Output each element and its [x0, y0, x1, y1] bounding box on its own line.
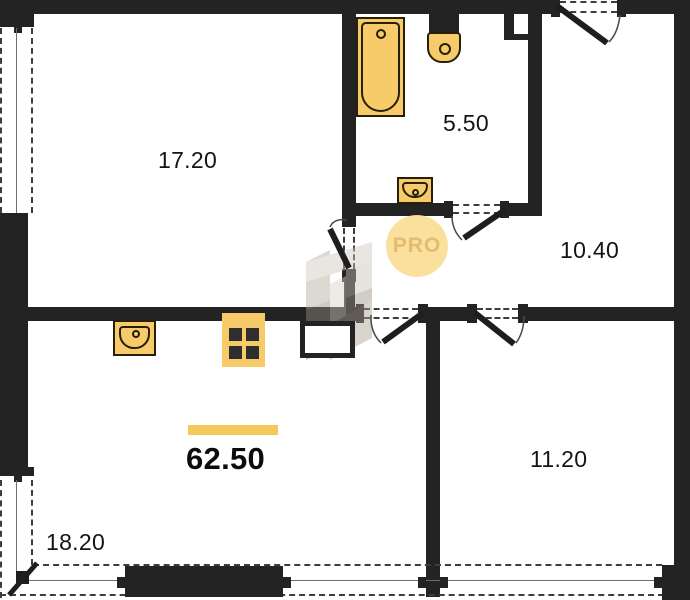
shaft-box	[300, 321, 355, 358]
wall-bathroom-bottom	[509, 203, 542, 216]
window-tick	[440, 577, 448, 588]
entry-door-opening-dashes	[560, 11, 617, 13]
balcony-glazing-dashed	[0, 480, 2, 598]
toilet-icon	[427, 32, 461, 63]
window-tick	[418, 577, 426, 588]
bedroom-door-post	[518, 304, 528, 323]
total-area-accent-bar	[188, 425, 278, 435]
bedroom-door-opening-dashes	[477, 317, 518, 319]
pro-watermark-label: PRO	[393, 234, 442, 258]
entry-door-opening-dashes	[560, 1, 617, 3]
wall-bathroom-bottom	[342, 203, 444, 216]
bathroom-door-opening-dashes	[453, 204, 500, 206]
balcony-glazing-line	[16, 28, 17, 213]
wall-top-left-block	[0, 14, 34, 27]
living-door-post	[342, 269, 356, 282]
wall-top-left	[0, 0, 552, 14]
duct-niche-bottom	[504, 34, 532, 40]
bathtub-drain	[376, 29, 386, 39]
stove-burner	[229, 346, 242, 359]
living-door-opening-dashes	[343, 228, 345, 269]
bath-sink-drain	[412, 189, 419, 196]
total-area-label: 62.50	[186, 441, 265, 477]
room-area-label-hallway: 10.40	[560, 237, 619, 264]
kitchen-door-opening-dashes	[364, 308, 418, 310]
kitchen-door-opening-dashes	[364, 317, 418, 319]
floor-plan: PRO 17.20 5.50 10.40 11.20 18.20 62.50	[0, 0, 690, 600]
living-door-post	[342, 214, 356, 227]
kitchen-sink-icon	[113, 320, 156, 356]
window-dashed-line	[0, 594, 674, 596]
wall-kitchen-bedroom	[426, 321, 440, 597]
toilet-bowl	[439, 43, 451, 55]
entry-door-post	[617, 0, 626, 17]
wall-left-sill	[0, 467, 34, 476]
bedroom-door-opening-dashes	[477, 308, 518, 310]
toilet-tank	[429, 12, 459, 33]
stove-burner	[246, 346, 259, 359]
balcony-glazing-dashed	[31, 480, 33, 565]
bathroom-door-post	[500, 201, 509, 218]
wall-bedroom-top	[528, 307, 674, 321]
room-area-label-bedroom: 11.20	[530, 446, 587, 473]
bedroom-door-post	[467, 304, 477, 323]
window-tick	[117, 577, 125, 588]
bathroom-door-leaf	[452, 210, 505, 240]
wall-connector	[344, 282, 355, 309]
bathroom-door-post	[444, 201, 453, 218]
wall-right	[674, 0, 690, 600]
stove-burner	[229, 328, 242, 341]
stove-burner	[246, 328, 259, 341]
balcony-door-leaf	[9, 563, 37, 595]
kitchen-door-post	[356, 304, 364, 323]
bathroom-door-opening-dashes	[453, 212, 500, 214]
kitchen-sink-drain	[132, 330, 140, 338]
wall-bathroom-right	[528, 12, 542, 216]
entry-door-post	[551, 0, 560, 17]
room-area-label-living: 17.20	[158, 147, 217, 174]
wall-kitchen-top	[28, 307, 360, 321]
stove-icon	[222, 313, 265, 367]
pro-watermark-badge: PRO	[386, 215, 448, 277]
window-tick	[283, 577, 291, 588]
bathtub-icon	[356, 17, 405, 117]
living-door-opening-dashes	[353, 228, 355, 269]
window-tick	[654, 577, 662, 588]
balcony-glazing-line	[16, 480, 17, 583]
balcony-glazing-dashed	[0, 28, 2, 213]
wall-bottom-pier	[125, 566, 283, 597]
balcony-glazing-dashed	[31, 28, 33, 213]
wall-left	[0, 213, 28, 467]
room-area-label-bathroom: 5.50	[443, 110, 489, 137]
wall-hall-bottom	[428, 307, 468, 321]
wall-bathroom-left	[342, 12, 356, 216]
room-area-label-kitchen: 18.20	[46, 529, 105, 556]
wall-bottom-right-corner	[662, 565, 690, 600]
bath-sink-icon	[397, 177, 433, 204]
